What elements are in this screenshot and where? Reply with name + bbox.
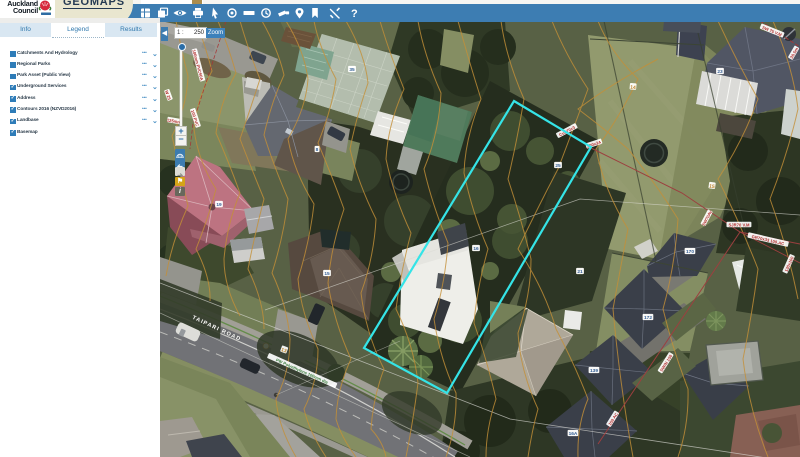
svg-text:14: 14 — [630, 85, 636, 91]
svg-text:16: 16 — [473, 246, 479, 252]
svg-text:139: 139 — [590, 368, 598, 374]
svg-text:170: 170 — [686, 249, 694, 255]
svg-text:15: 15 — [709, 184, 716, 191]
svg-text:?: ? — [351, 8, 358, 20]
svg-text:16A: 16A — [569, 431, 578, 437]
svg-text:23: 23 — [717, 69, 723, 75]
svg-text:19: 19 — [216, 202, 222, 208]
svg-text:SJR70 V.M: SJR70 V.M — [728, 223, 750, 228]
svg-text:25: 25 — [555, 163, 561, 169]
svg-text:172: 172 — [644, 315, 652, 321]
svg-text:15: 15 — [324, 271, 330, 277]
svg-text:8: 8 — [316, 147, 319, 153]
svg-text:35: 35 — [349, 67, 355, 73]
svg-text:21: 21 — [577, 269, 583, 275]
